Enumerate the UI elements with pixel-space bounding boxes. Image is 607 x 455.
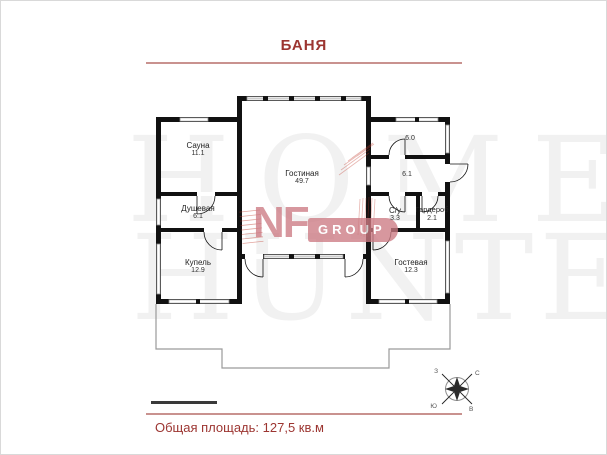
room-label-wardrobe: Гардероб 2.1 [416, 206, 449, 223]
floor-plan-page: HOME HUNTER [0, 0, 607, 455]
title-divider [146, 62, 462, 64]
room-area: 6.1 [402, 171, 412, 179]
room-label-plunge-pool: Купель 12.9 [185, 258, 211, 275]
room-area: 2.1 [416, 215, 449, 223]
room-area: 6.0 [405, 135, 415, 143]
room-area: 12.3 [394, 267, 427, 275]
red-hatch-marks [239, 143, 375, 243]
room-label-shower: Душевая 6.1 [181, 204, 214, 221]
room-area: 12.9 [185, 267, 211, 275]
room-label-6-0: 6.0 [405, 135, 415, 143]
room-area: 6.1 [181, 213, 214, 221]
total-area-text: Общая площадь: 127,5 кв.м [155, 420, 324, 435]
room-label-6-1: 6.1 [402, 171, 412, 179]
room-name: Душевая [181, 204, 214, 213]
compass-north-label: С [475, 370, 480, 377]
compass-south-label: Ю [430, 403, 437, 410]
room-name: Купель [185, 258, 211, 267]
room-name: С/у [389, 206, 401, 215]
room-name: Гостевая [394, 258, 427, 267]
room-label-living-room: Гостиная 49.7 [285, 169, 319, 186]
room-name: Сауна [186, 141, 209, 150]
page-title: БАНЯ [146, 37, 462, 54]
scale-bar [151, 401, 217, 404]
terrace-outline [156, 304, 450, 368]
room-label-sauna: Сауна 11.1 [186, 141, 209, 158]
room-area: 49.7 [285, 178, 319, 186]
compass-rose: З С Ю В [430, 368, 480, 413]
room-area: 11.1 [186, 150, 209, 158]
floor-plan-drawing: З С Ю В [1, 1, 607, 455]
room-label-guest-room: Гостевая 12.3 [394, 258, 427, 275]
room-name: Гардероб [416, 206, 449, 215]
room-area: 3.3 [389, 215, 401, 223]
room-name: Гостиная [285, 169, 319, 178]
footer-divider [146, 413, 462, 415]
compass-west-label: З [434, 368, 438, 375]
compass-east-label: В [469, 406, 473, 413]
room-label-wc: С/у 3.3 [389, 206, 401, 223]
